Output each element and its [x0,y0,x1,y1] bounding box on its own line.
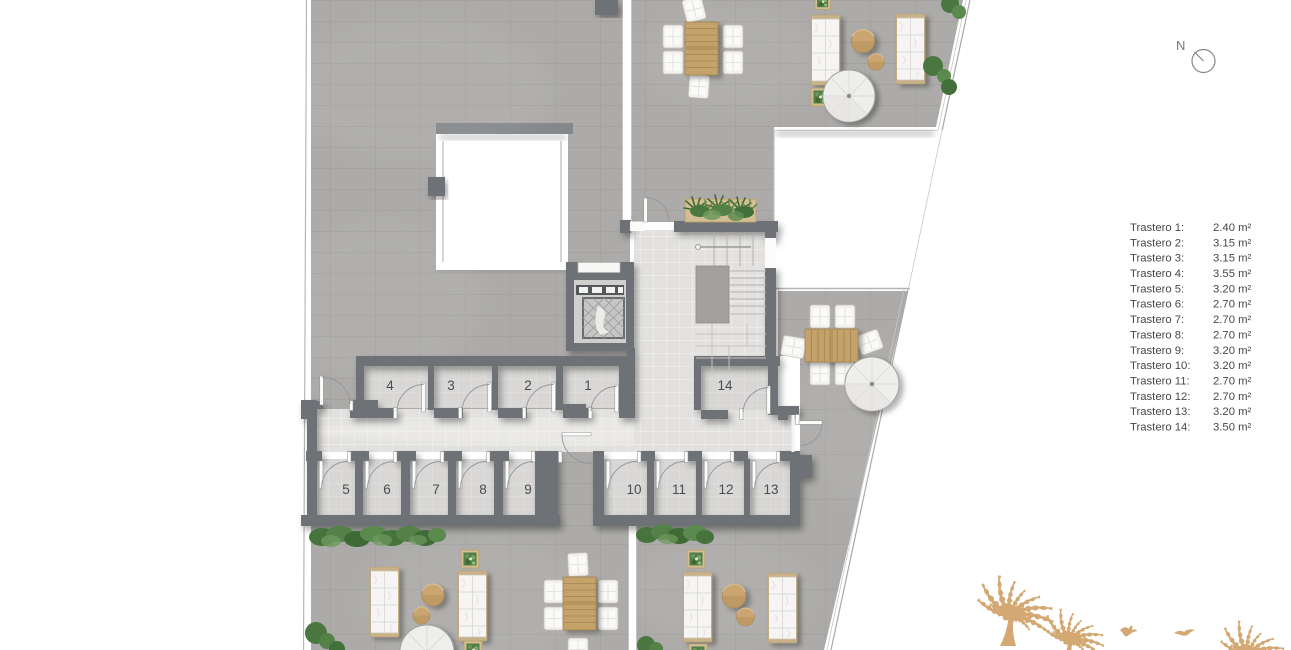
svg-text:3.20 m²: 3.20 m² [1213,283,1252,295]
svg-text:Trastero 9:: Trastero 9: [1130,345,1184,357]
svg-text:2.70 m²: 2.70 m² [1213,299,1252,311]
svg-text:Trastero 10:: Trastero 10: [1130,360,1190,372]
svg-text:14: 14 [717,378,733,393]
svg-text:Trastero 14:: Trastero 14: [1130,422,1190,434]
svg-text:2.70 m²: 2.70 m² [1213,314,1252,326]
svg-text:Trastero 1:: Trastero 1: [1130,222,1184,234]
svg-text:1: 1 [584,378,592,393]
svg-text:2.70 m²: 2.70 m² [1213,376,1252,388]
svg-text:Trastero 8:: Trastero 8: [1130,329,1184,341]
svg-text:3.55 m²: 3.55 m² [1213,268,1252,280]
svg-text:Trastero 4:: Trastero 4: [1130,268,1184,280]
svg-text:9: 9 [524,482,532,497]
svg-text:4: 4 [386,378,394,393]
svg-text:3.50 m²: 3.50 m² [1213,422,1252,434]
svg-text:3.20 m²: 3.20 m² [1213,345,1252,357]
svg-text:Trastero 13:: Trastero 13: [1130,406,1190,418]
svg-text:2: 2 [524,378,532,393]
svg-text:3.15 m²: 3.15 m² [1213,237,1252,249]
svg-text:Trastero 3:: Trastero 3: [1130,253,1184,265]
svg-text:Trastero 11:: Trastero 11: [1130,376,1190,388]
svg-text:7: 7 [432,482,440,497]
svg-text:13: 13 [763,482,778,497]
svg-text:2.70 m²: 2.70 m² [1213,391,1252,403]
svg-text:10: 10 [626,482,641,497]
svg-text:N: N [1176,38,1185,53]
svg-text:12: 12 [718,482,733,497]
svg-text:5: 5 [342,482,350,497]
svg-text:2.70 m²: 2.70 m² [1213,329,1252,341]
svg-text:Trastero 6:: Trastero 6: [1130,299,1184,311]
svg-text:3: 3 [447,378,455,393]
svg-text:3.15 m²: 3.15 m² [1213,253,1252,265]
svg-text:Trastero 12:: Trastero 12: [1130,391,1190,403]
svg-text:6: 6 [383,482,391,497]
svg-text:Trastero 5:: Trastero 5: [1130,283,1184,295]
svg-text:8: 8 [479,482,487,497]
svg-text:11: 11 [672,482,686,497]
svg-text:3.20 m²: 3.20 m² [1213,406,1252,418]
svg-text:2.40 m²: 2.40 m² [1213,222,1252,234]
svg-text:Trastero 7:: Trastero 7: [1130,314,1184,326]
svg-text:Trastero 2:: Trastero 2: [1130,237,1184,249]
svg-text:3.20 m²: 3.20 m² [1213,360,1252,372]
